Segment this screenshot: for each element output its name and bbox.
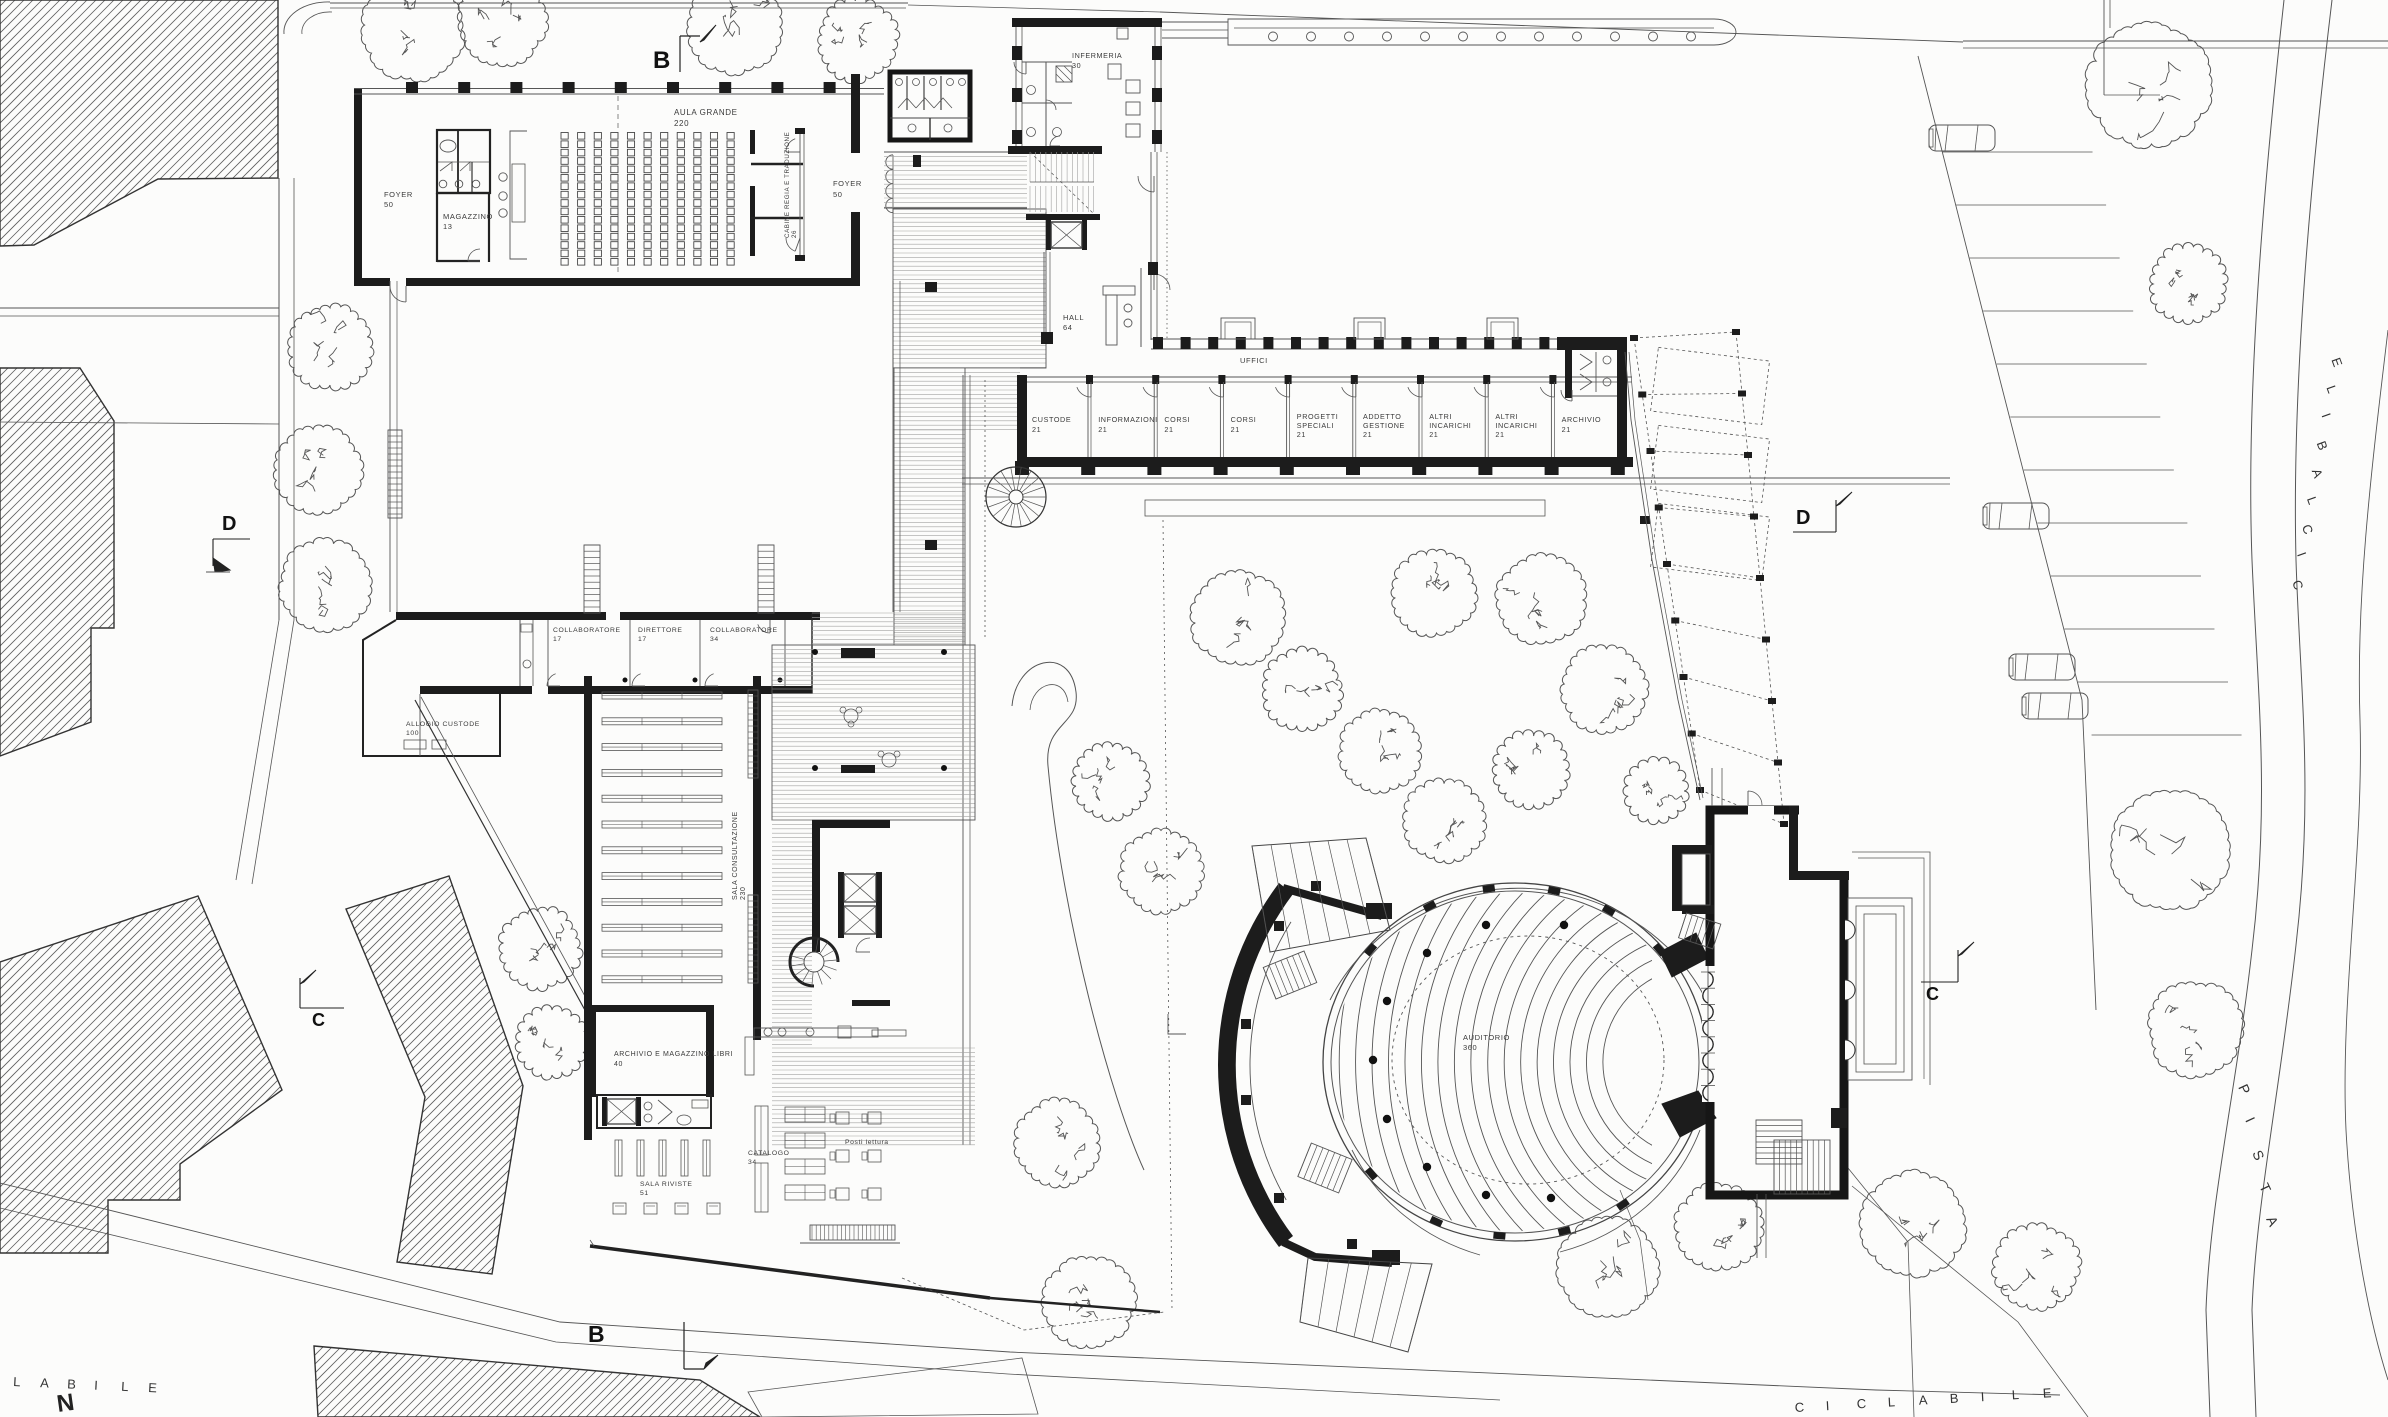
svg-text:L: L — [2011, 1387, 2020, 1402]
svg-text:SPECIALI: SPECIALI — [1297, 421, 1334, 430]
svg-text:21: 21 — [1297, 430, 1306, 439]
svg-text:L: L — [1887, 1394, 1896, 1409]
svg-text:50: 50 — [833, 190, 843, 199]
svg-text:40: 40 — [614, 1061, 623, 1068]
svg-text:INFERMERIA: INFERMERIA — [1072, 51, 1122, 60]
svg-text:INCARICHI: INCARICHI — [1495, 421, 1537, 430]
svg-text:A: A — [1918, 1392, 1928, 1407]
svg-text:D: D — [1796, 507, 1811, 529]
svg-text:C: C — [1856, 1396, 1867, 1412]
svg-text:COLLABORATORE: COLLABORATORE — [553, 627, 621, 634]
svg-text:CUSTODE: CUSTODE — [1032, 415, 1071, 424]
svg-text:E: E — [2042, 1385, 2052, 1400]
svg-text:INCARICHI: INCARICHI — [1429, 421, 1471, 430]
svg-text:17: 17 — [553, 636, 562, 643]
svg-text:MAGAZZINO: MAGAZZINO — [443, 212, 493, 221]
svg-text:E: E — [148, 1380, 158, 1395]
svg-text:DIRETTORE: DIRETTORE — [638, 627, 683, 634]
svg-text:SALA RIVISTE: SALA RIVISTE — [640, 1181, 693, 1188]
svg-text:21: 21 — [1098, 425, 1107, 434]
svg-text:30: 30 — [1072, 61, 1081, 70]
svg-text:HALL: HALL — [1063, 313, 1084, 322]
svg-text:N: N — [55, 1389, 77, 1417]
svg-text:FOYER: FOYER — [384, 190, 413, 199]
svg-text:COLLABORATORE: COLLABORATORE — [710, 627, 778, 634]
svg-text:ARCHIVIO: ARCHIVIO — [1562, 415, 1602, 424]
svg-text:CORSI: CORSI — [1164, 415, 1190, 424]
svg-text:CORSI: CORSI — [1231, 415, 1257, 424]
svg-text:ADDETTO: ADDETTO — [1363, 412, 1401, 421]
svg-text:GESTIONE: GESTIONE — [1363, 421, 1405, 430]
svg-text:64: 64 — [1063, 323, 1073, 332]
svg-text:B: B — [653, 47, 671, 74]
svg-text:21: 21 — [1231, 425, 1240, 434]
svg-text:L: L — [121, 1379, 130, 1394]
svg-text:C: C — [1794, 1399, 1805, 1415]
svg-text:CATALOGO: CATALOGO — [748, 1150, 790, 1157]
svg-text:21: 21 — [1429, 430, 1438, 439]
svg-text:AULA GRANDE: AULA GRANDE — [674, 108, 738, 117]
svg-text:Posti lettura: Posti lettura — [845, 1139, 889, 1146]
svg-text:21: 21 — [1032, 425, 1041, 434]
svg-text:L: L — [13, 1374, 22, 1389]
svg-text:21: 21 — [1495, 430, 1504, 439]
svg-text:51: 51 — [640, 1190, 649, 1197]
svg-text:AUDITORIO: AUDITORIO — [1463, 1033, 1510, 1042]
svg-text:ALTRI: ALTRI — [1429, 412, 1452, 421]
svg-text:100: 100 — [406, 730, 419, 737]
svg-text:17: 17 — [638, 636, 647, 643]
svg-text:A: A — [40, 1375, 50, 1390]
svg-text:B: B — [1949, 1391, 1959, 1406]
svg-text:D: D — [222, 513, 237, 535]
svg-text:I: I — [1825, 1398, 1830, 1413]
svg-text:ARCHIVIO E MAGAZZINO LIBRI: ARCHIVIO E MAGAZZINO LIBRI — [614, 1051, 733, 1058]
svg-text:21: 21 — [1562, 425, 1571, 434]
svg-text:C: C — [312, 1010, 326, 1030]
svg-text:UFFICI: UFFICI — [1240, 356, 1268, 365]
svg-text:34: 34 — [748, 1159, 757, 1166]
svg-text:21: 21 — [1164, 425, 1173, 434]
svg-text:ALLOGIO CUSTODE: ALLOGIO CUSTODE — [406, 721, 480, 728]
svg-text:I: I — [94, 1378, 99, 1393]
svg-text:I: I — [1980, 1389, 1985, 1404]
svg-text:21: 21 — [1363, 430, 1372, 439]
svg-text:FOYER: FOYER — [833, 179, 862, 188]
svg-text:34: 34 — [710, 636, 719, 643]
svg-text:SALA CONSULTAZIONE: SALA CONSULTAZIONE — [732, 811, 739, 900]
svg-text:50: 50 — [384, 200, 394, 209]
svg-text:B: B — [588, 1321, 605, 1347]
svg-text:PROGETTI: PROGETTI — [1297, 412, 1339, 421]
svg-text:INFORMAZIONI: INFORMAZIONI — [1098, 415, 1158, 424]
svg-text:13: 13 — [443, 222, 453, 231]
svg-text:CABINE REGIA E TRADUZIONE: CABINE REGIA E TRADUZIONE — [784, 132, 791, 238]
svg-text:ALTRI: ALTRI — [1495, 412, 1518, 421]
svg-text:C: C — [1926, 984, 1940, 1004]
svg-text:220: 220 — [674, 119, 689, 128]
svg-text:26: 26 — [791, 230, 798, 238]
svg-text:230: 230 — [740, 887, 747, 900]
svg-text:360: 360 — [1463, 1043, 1477, 1052]
